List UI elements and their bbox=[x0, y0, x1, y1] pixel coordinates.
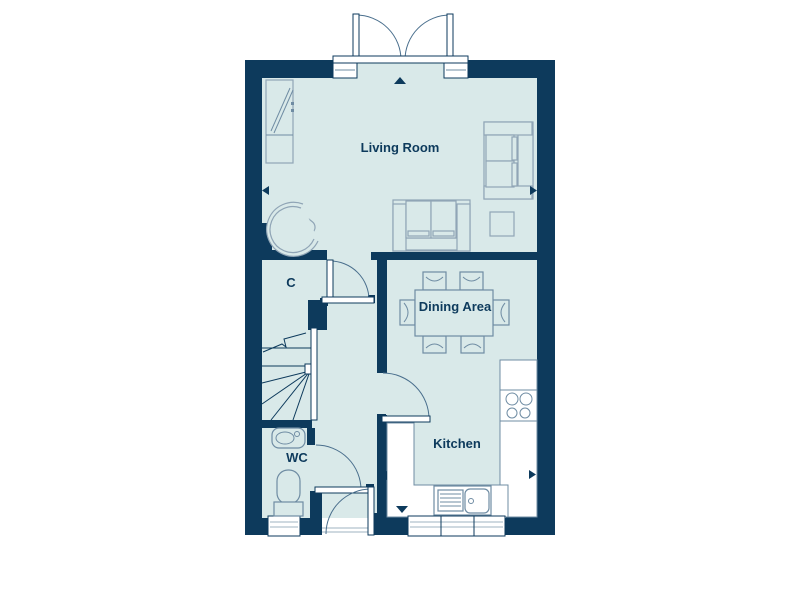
dining-chair bbox=[423, 336, 446, 353]
kitchen-sink bbox=[434, 486, 491, 515]
dining-chair bbox=[493, 300, 509, 325]
dining-chair bbox=[400, 300, 415, 325]
sofa-main bbox=[393, 200, 470, 251]
dining-area-label: Dining Area bbox=[419, 299, 492, 314]
french-door-leaf-right bbox=[447, 14, 453, 60]
wc-window bbox=[268, 516, 300, 536]
french-door-leaf-left bbox=[353, 14, 359, 60]
tv-unit bbox=[266, 80, 294, 163]
dining-chair bbox=[423, 272, 446, 290]
dining-chair bbox=[461, 336, 484, 353]
dining-chair bbox=[460, 272, 483, 290]
kitchen-label: Kitchen bbox=[433, 436, 481, 451]
kitchen-window bbox=[408, 516, 505, 536]
stairs-stringer bbox=[311, 328, 317, 420]
wc-basin bbox=[272, 428, 305, 448]
side-table bbox=[490, 212, 514, 236]
floor-plan-drawing: Living Room Dining Area Kitchen C WC bbox=[0, 0, 800, 600]
sofa-right bbox=[484, 122, 533, 199]
wc-toilet bbox=[274, 470, 303, 516]
floor-plan: Living Room Dining Area Kitchen C WC bbox=[0, 0, 800, 600]
living-room-label: Living Room bbox=[361, 140, 440, 155]
french-door-sill bbox=[333, 56, 468, 63]
wc-label: WC bbox=[286, 450, 308, 465]
closet-label: C bbox=[286, 275, 296, 290]
